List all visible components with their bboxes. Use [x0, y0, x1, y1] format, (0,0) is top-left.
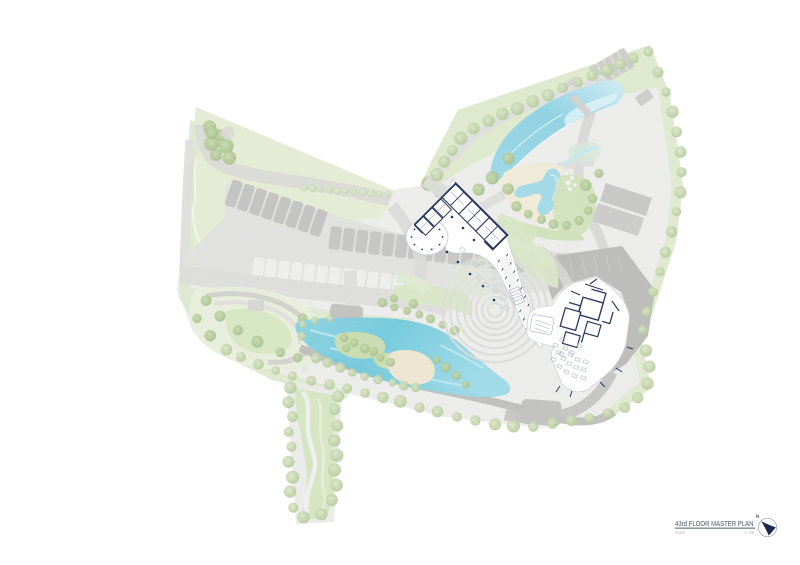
svg-text:43rd FLOOR MASTER PLAN: 43rd FLOOR MASTER PLAN: [675, 519, 754, 528]
svg-text:SCALE: SCALE: [675, 531, 685, 535]
svg-text:1 : 200: 1 : 200: [745, 531, 755, 535]
